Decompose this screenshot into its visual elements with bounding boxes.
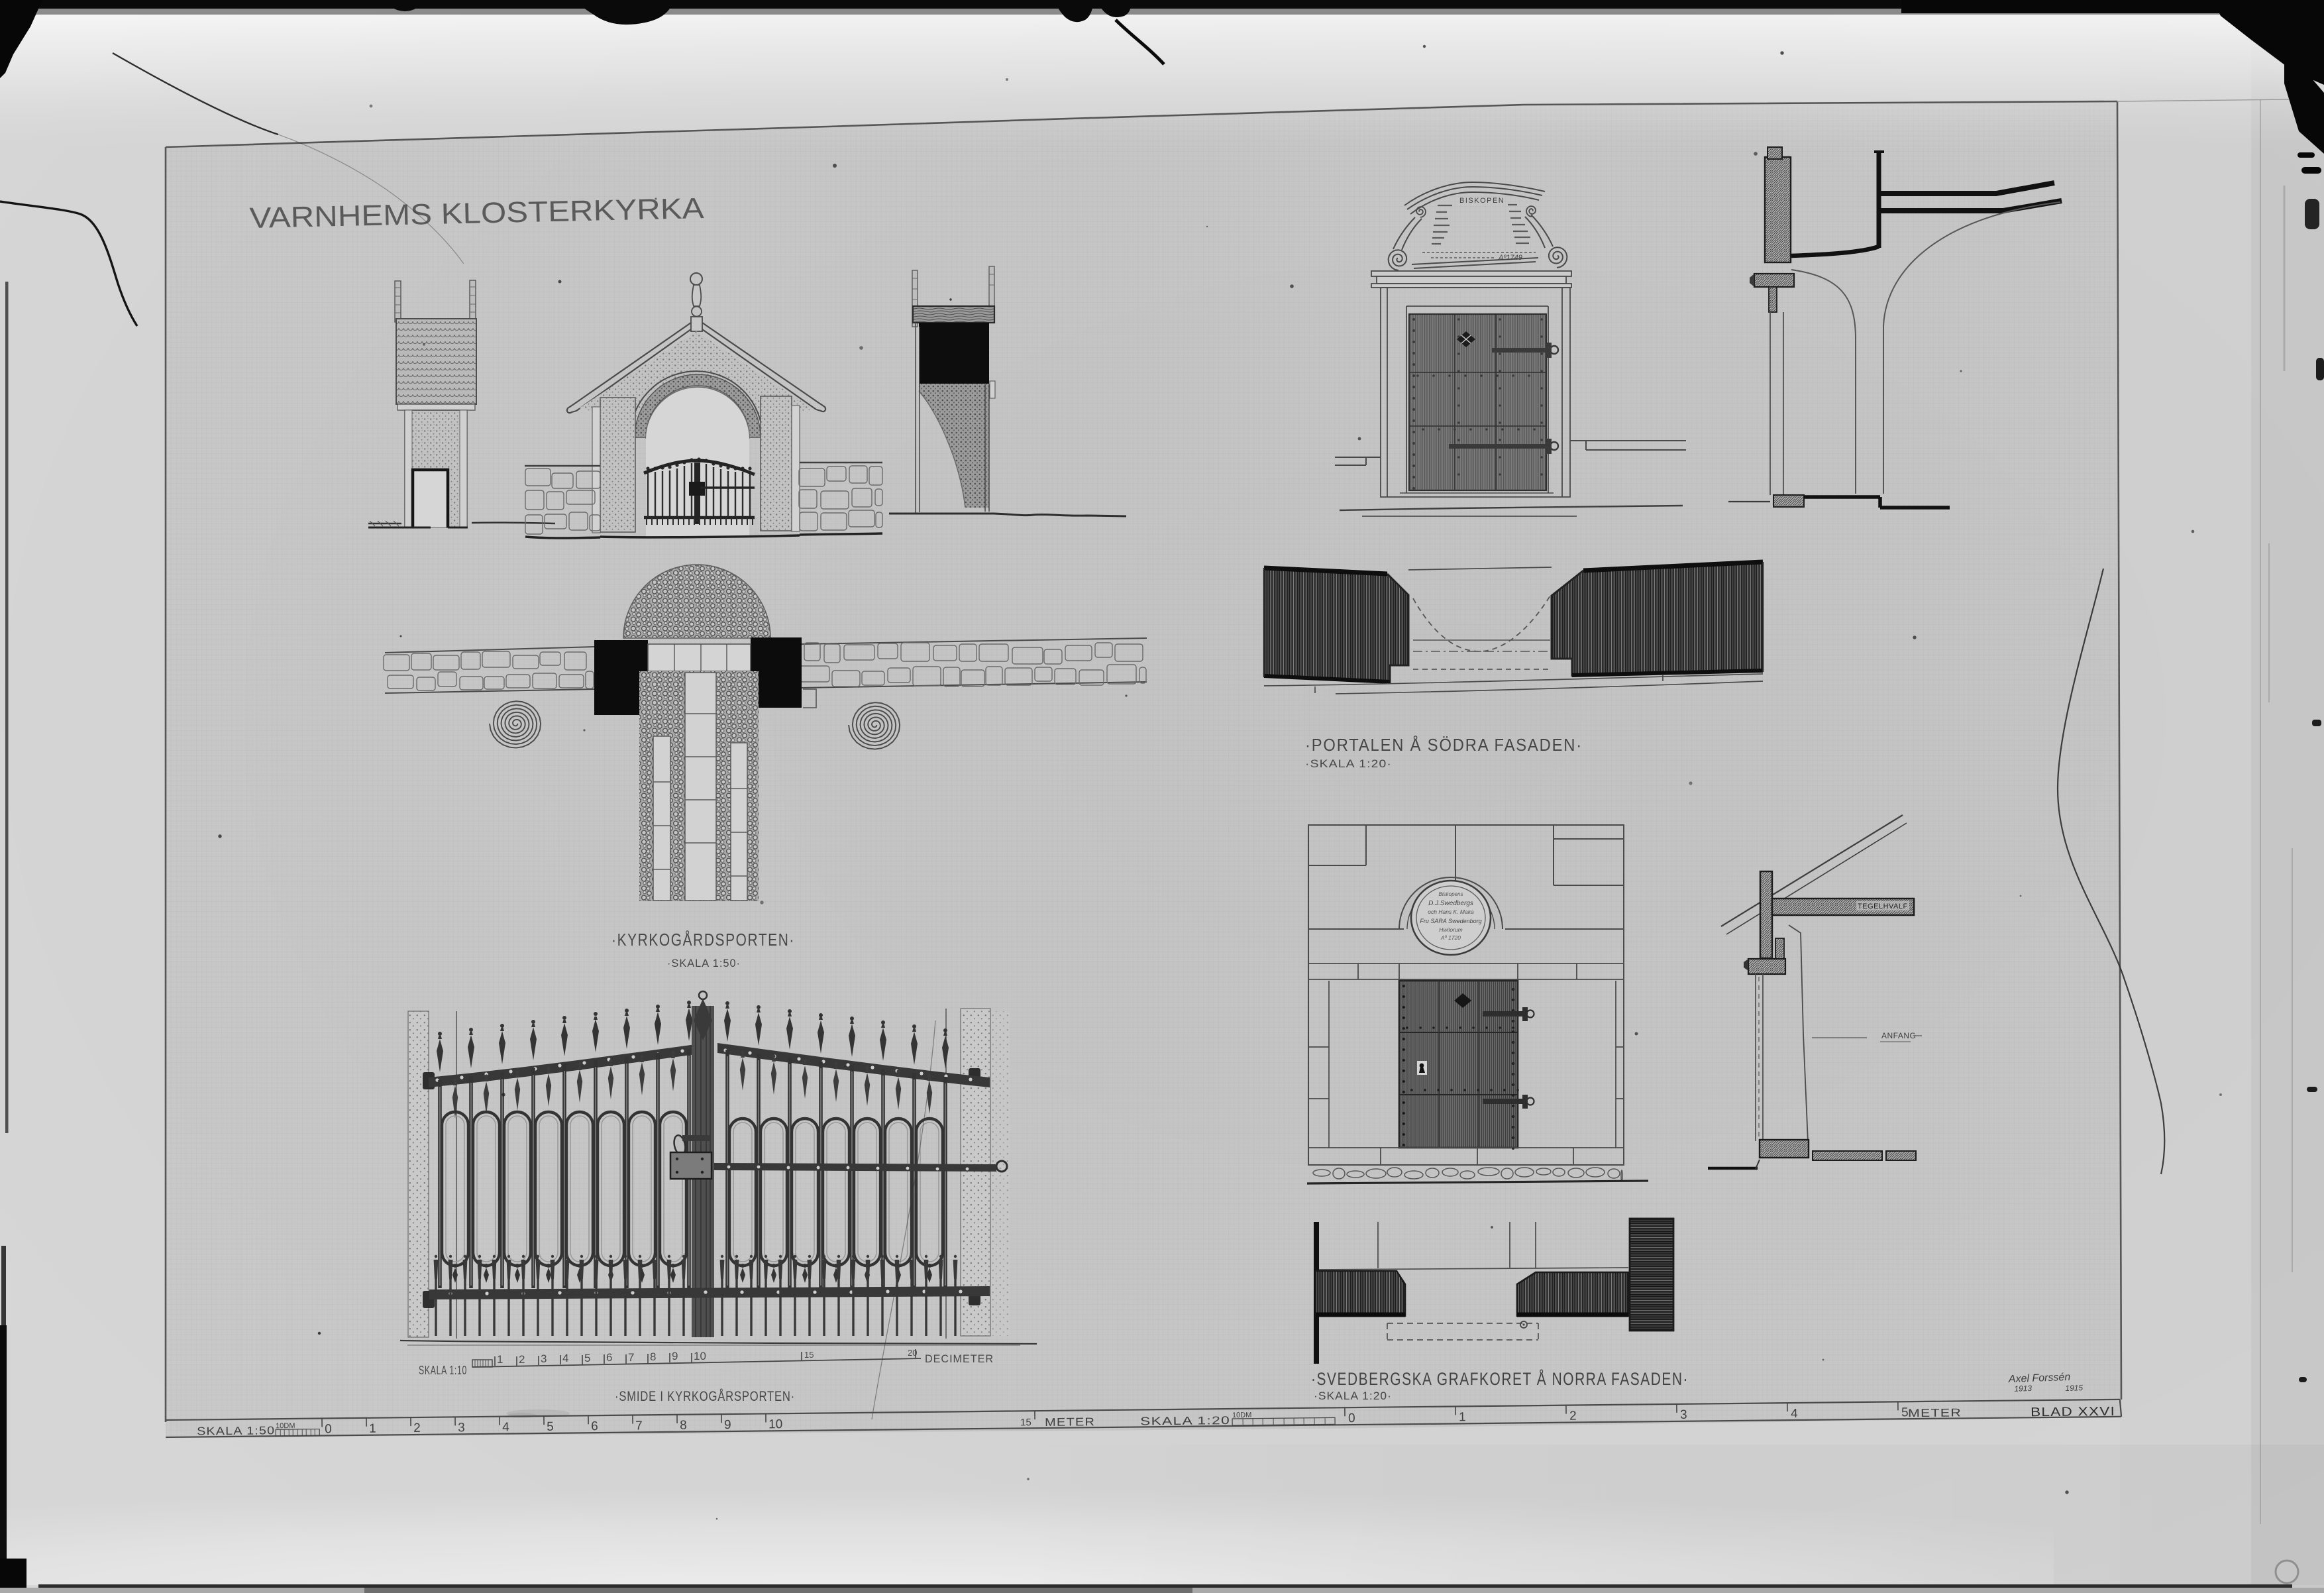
svg-text:METER: METER <box>1908 1406 1962 1419</box>
svg-text:6: 6 <box>606 1351 612 1364</box>
svg-text:1: 1 <box>369 1422 376 1436</box>
svg-text:5: 5 <box>584 1352 590 1364</box>
svg-text:·SMIDE I KYRKOGÅRSPORTEN·: ·SMIDE I KYRKOGÅRSPORTEN· <box>615 1389 795 1404</box>
svg-text:3: 3 <box>458 1421 465 1435</box>
svg-text:Biskopens: Biskopens <box>1439 891 1463 897</box>
svg-text:0: 0 <box>325 1422 332 1436</box>
svg-text:4: 4 <box>1791 1407 1798 1421</box>
svg-text:15: 15 <box>1020 1417 1031 1428</box>
svg-text:2: 2 <box>413 1421 421 1435</box>
svg-text:9: 9 <box>672 1350 678 1362</box>
svg-text:4: 4 <box>502 1421 509 1435</box>
svg-text:0: 0 <box>1348 1411 1355 1425</box>
svg-text:1915: 1915 <box>2065 1383 2083 1393</box>
svg-text:5: 5 <box>547 1420 554 1434</box>
svg-text:20: 20 <box>908 1348 917 1358</box>
svg-text:3: 3 <box>541 1352 547 1365</box>
svg-text:2: 2 <box>519 1353 525 1366</box>
svg-text:8: 8 <box>680 1419 687 1433</box>
svg-text:·SKALA 1:50·: ·SKALA 1:50· <box>667 957 741 969</box>
svg-text:10: 10 <box>768 1417 782 1431</box>
svg-text:METER: METER <box>1045 1415 1095 1429</box>
svg-text:TEGELHVALF: TEGELHVALF <box>1858 903 1908 910</box>
svg-text:·PORTALEN Å SÖDRA FASADEN·: ·PORTALEN Å SÖDRA FASADEN· <box>1305 735 1583 755</box>
svg-text:10: 10 <box>694 1350 706 1362</box>
svg-text:1: 1 <box>497 1353 503 1366</box>
svg-text:BISKOPEN: BISKOPEN <box>1459 197 1505 205</box>
svg-text:SKALA 1:10: SKALA 1:10 <box>419 1364 467 1377</box>
svg-text:ANFANG: ANFANG <box>1881 1031 1916 1040</box>
svg-text:9: 9 <box>724 1418 731 1432</box>
svg-text:DECIMETER: DECIMETER <box>925 1352 994 1365</box>
svg-text:6: 6 <box>591 1419 598 1433</box>
svg-text:7: 7 <box>628 1351 634 1364</box>
svg-text:3: 3 <box>1680 1408 1687 1422</box>
svg-text:Hwilorum: Hwilorum <box>1439 926 1462 933</box>
svg-text:SKALA 1:50: SKALA 1:50 <box>197 1424 275 1437</box>
svg-text:och Hans K. Maka: och Hans K. Maka <box>1428 908 1474 915</box>
svg-text:·SVEDBERGSKA GRAFKORET Å NORRA: ·SVEDBERGSKA GRAFKORET Å NORRA FASADEN· <box>1311 1368 1689 1389</box>
svg-text:BLAD XXVI: BLAD XXVI <box>2031 1405 2115 1419</box>
svg-text:Aº1749: Aº1749 <box>1498 254 1522 262</box>
svg-text:2: 2 <box>1569 1409 1577 1423</box>
svg-text:Fru SARA Swedenborg: Fru SARA Swedenborg <box>1420 918 1481 924</box>
svg-text:1913: 1913 <box>2014 1384 2032 1394</box>
svg-text:8: 8 <box>650 1350 656 1363</box>
svg-text:4: 4 <box>562 1352 568 1364</box>
svg-text:D.J.Swedbergs: D.J.Swedbergs <box>1428 900 1473 907</box>
svg-text:·SKALA 1:20·: ·SKALA 1:20· <box>1305 757 1392 770</box>
svg-text:·KYRKOGÅRDSPORTEN·: ·KYRKOGÅRDSPORTEN· <box>611 930 795 950</box>
svg-text:15: 15 <box>804 1350 814 1360</box>
svg-text:·SKALA 1:20·: ·SKALA 1:20· <box>1314 1390 1392 1402</box>
svg-text:1: 1 <box>1459 1410 1466 1424</box>
svg-text:Aº 1720: Aº 1720 <box>1440 934 1461 941</box>
svg-text:Axel Forssén: Axel Forssén <box>2008 1372 2071 1385</box>
svg-text:SKALA 1:20: SKALA 1:20 <box>1140 1414 1230 1427</box>
svg-text:7: 7 <box>635 1419 643 1433</box>
